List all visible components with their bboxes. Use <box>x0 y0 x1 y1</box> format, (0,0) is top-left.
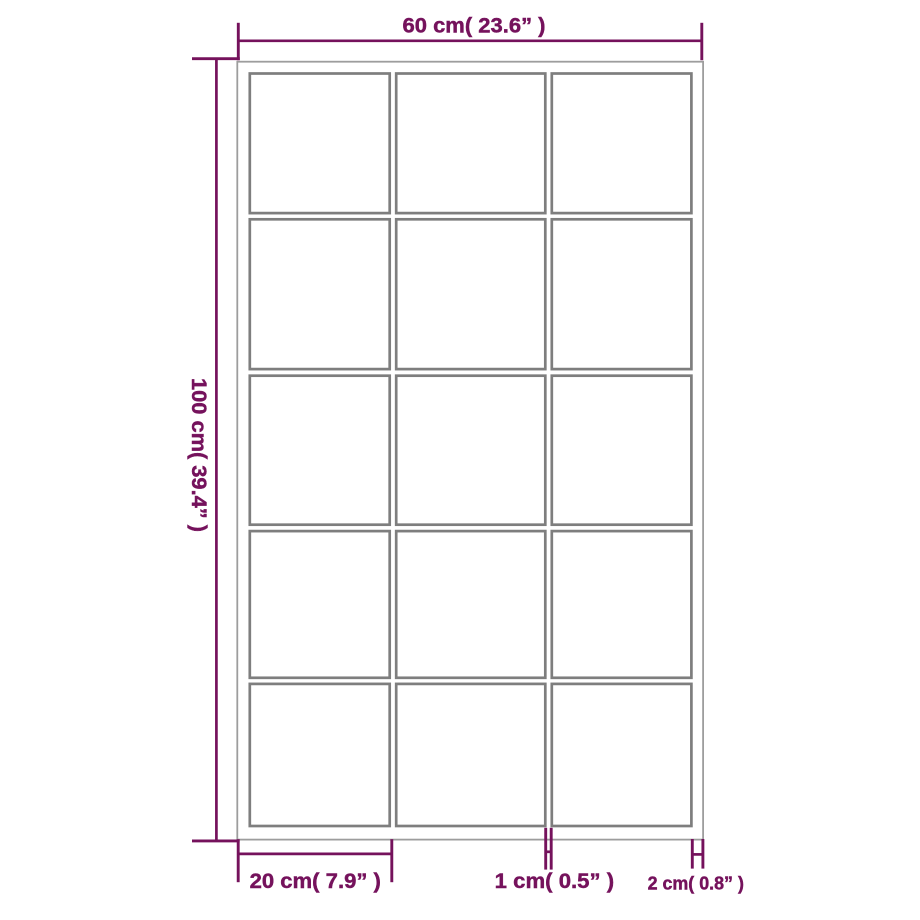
svg-text:60 cm( 23.6” ): 60 cm( 23.6” ) <box>403 15 546 38</box>
svg-text:1 cm( 0.5” ): 1 cm( 0.5” ) <box>495 870 614 893</box>
svg-text:100 cm( 39.4” ): 100 cm( 39.4” ) <box>187 378 210 532</box>
svg-text:2 cm( 0.8” ): 2 cm( 0.8” ) <box>648 874 744 894</box>
svg-text:20 cm( 7.9” ): 20 cm( 7.9” ) <box>250 870 381 893</box>
